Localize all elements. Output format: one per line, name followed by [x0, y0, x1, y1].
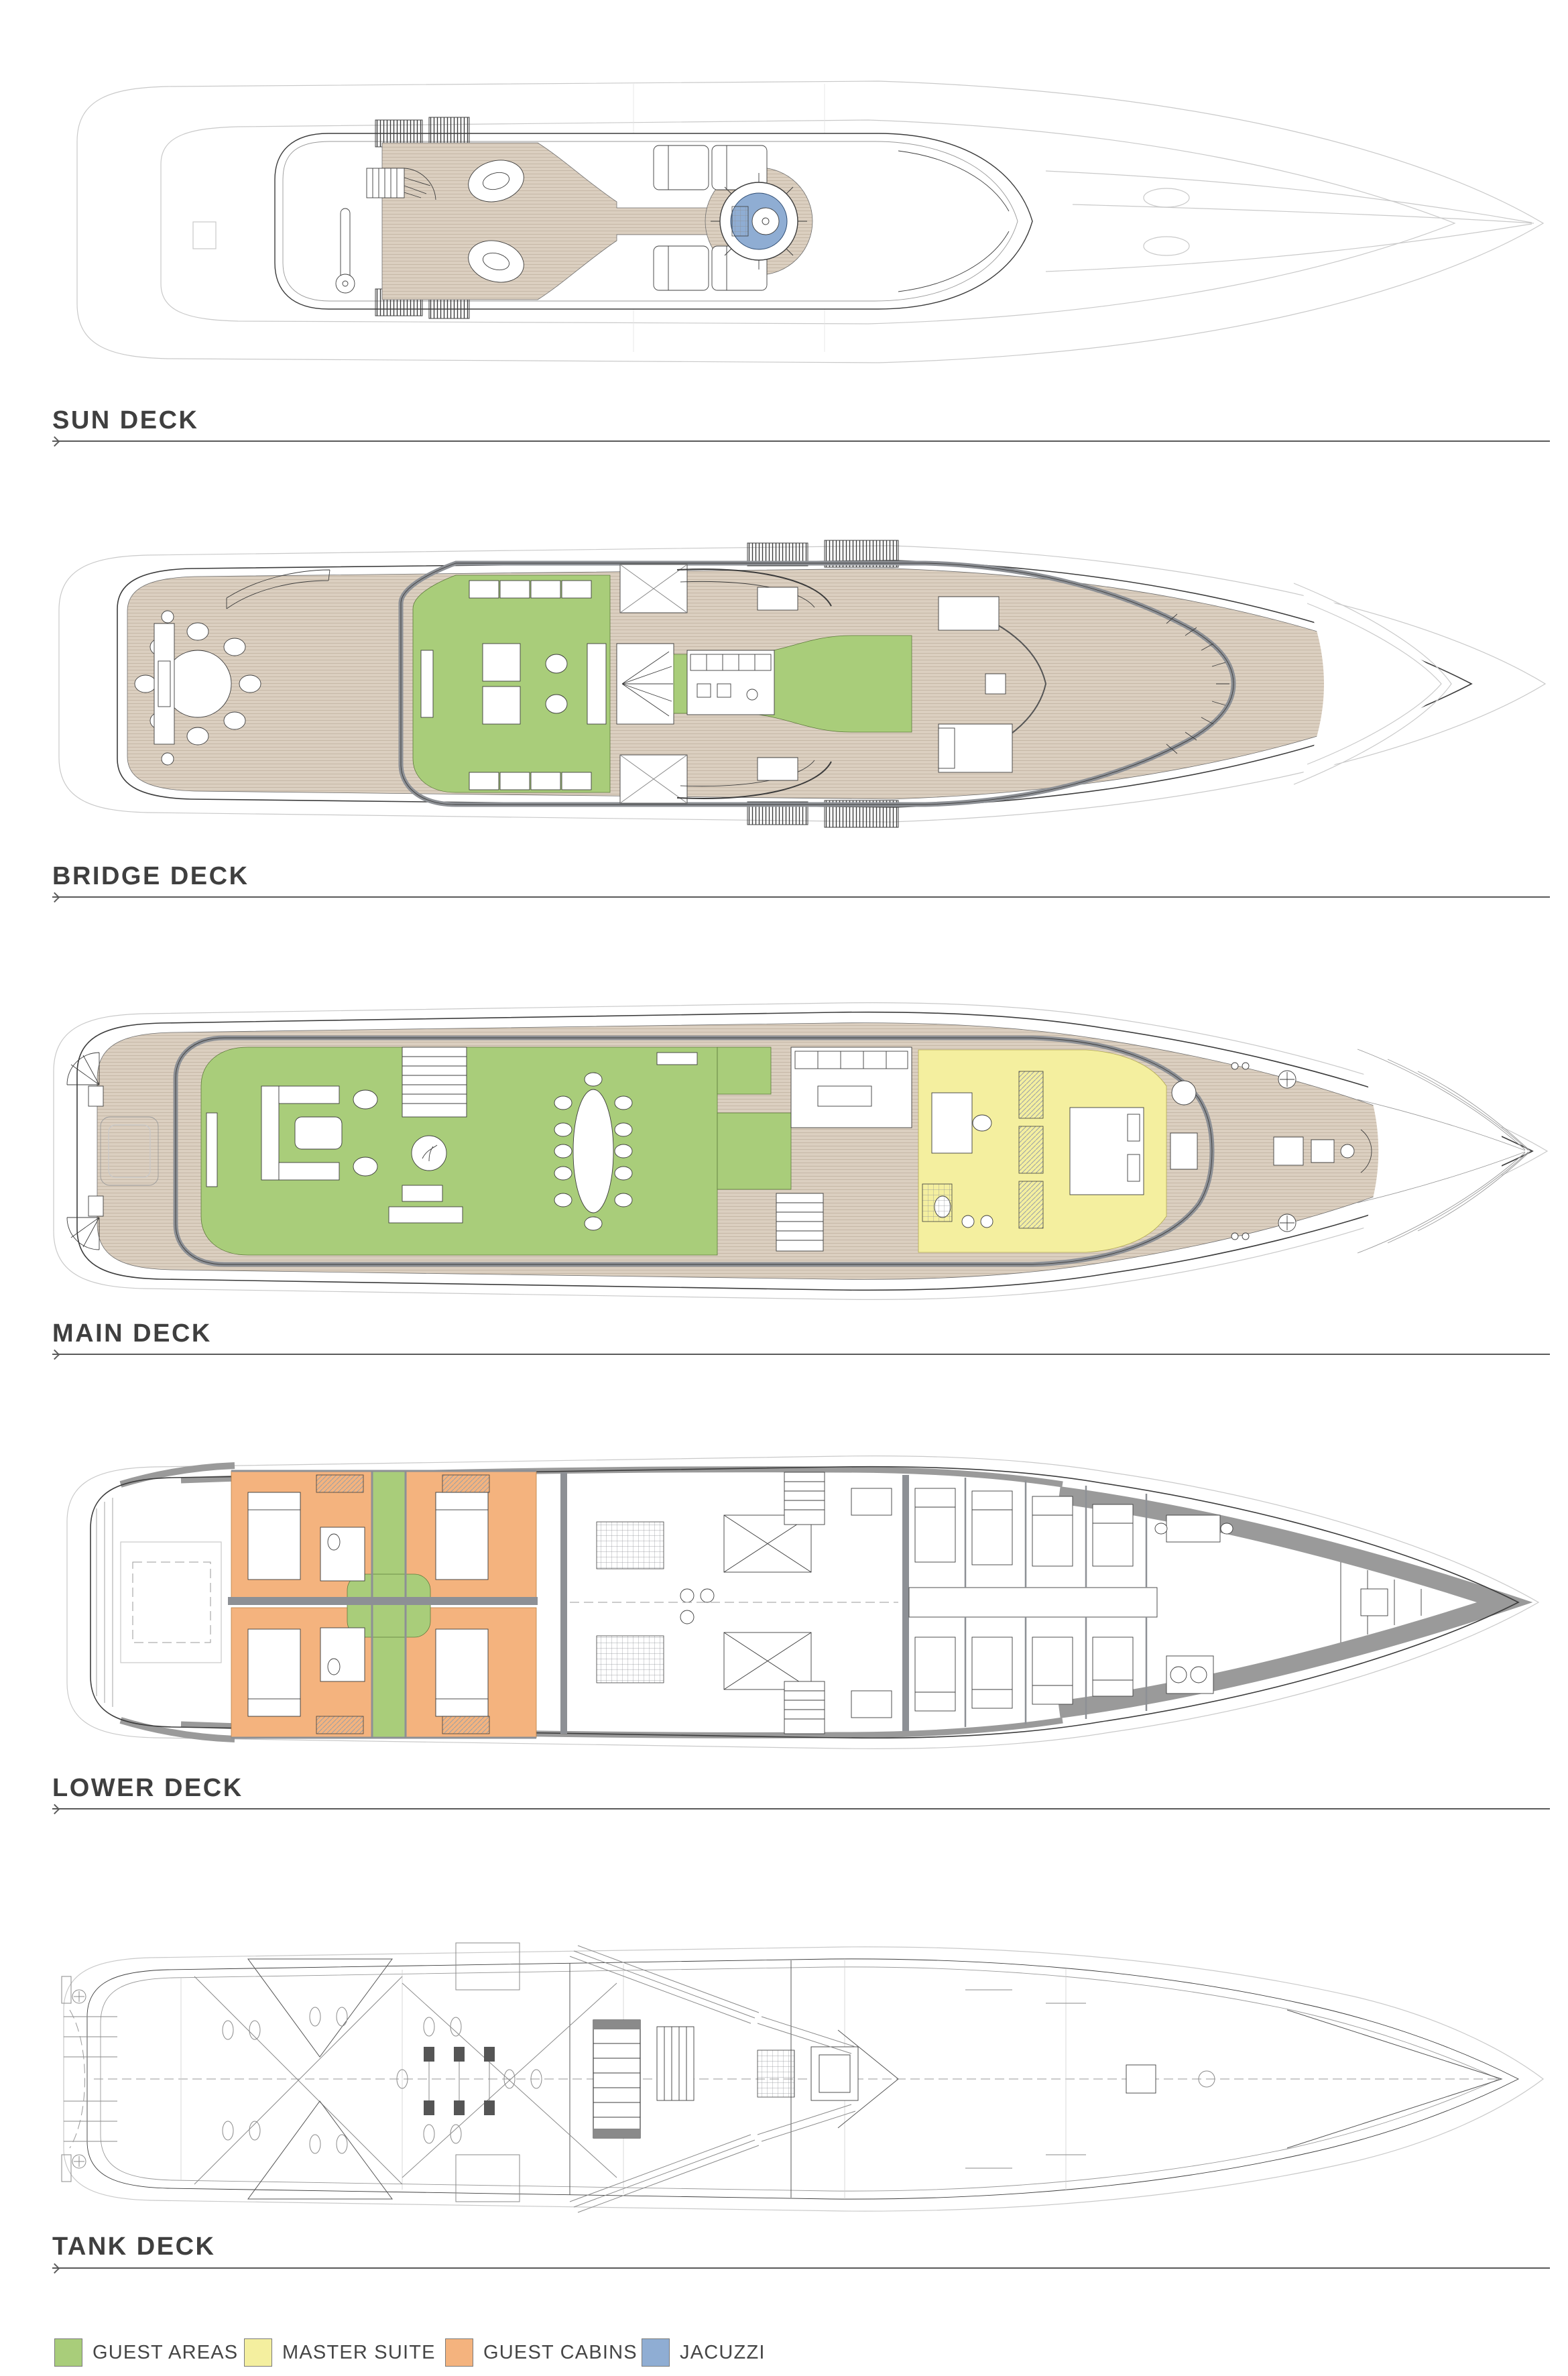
bridge-deck-plan [27, 523, 1549, 845]
legend-item-guest-areas: GUEST AREAS [54, 2338, 238, 2367]
main-deck-label: MAIN DECK [52, 1319, 212, 1348]
guest-areas-swatch [54, 2338, 82, 2367]
sun-deck-divider [52, 440, 1550, 442]
guest-cabins-swatch [445, 2338, 473, 2367]
bridge-deck-label: BRIDGE DECK [52, 862, 249, 891]
tank-deck-label: TANK DECK [52, 2233, 215, 2261]
sun-deck-label: SUN DECK [52, 406, 198, 435]
tank-deck-plan [27, 1916, 1549, 2228]
main-deck-salon-guest-area [201, 1047, 791, 1255]
tank-deck-manholes [223, 2007, 542, 2153]
tank-deck-machinery [593, 2020, 858, 2138]
bridge-deck-sky-lounge [413, 575, 610, 792]
lower-deck-divider [52, 1808, 1550, 1809]
jacuzzi-swatch [642, 2338, 670, 2367]
tank-deck-hull [64, 1947, 1543, 2211]
sun-deck-open-foredeck [1046, 171, 1534, 272]
lower-deck-plan [27, 1428, 1549, 1770]
deck-plans-page: SUN DECK [0, 0, 1568, 2376]
main-deck-plan [27, 986, 1549, 1314]
guest-cabins-region [228, 1471, 538, 1738]
main-deck-divider [52, 1354, 1550, 1355]
tank-deck-divider [52, 2267, 1550, 2269]
jacuzzi [711, 173, 807, 270]
legend-item-master-suite: MASTER SUITE [244, 2338, 436, 2367]
main-deck-dining [554, 1073, 632, 1230]
bridge-deck-pantry [687, 650, 774, 715]
lower-deck-label: LOWER DECK [52, 1774, 243, 1803]
sun-deck-plan [27, 70, 1549, 365]
master-suite-region [918, 1050, 1166, 1252]
guest-cabins-label: GUEST CABINS [483, 2342, 638, 2364]
legend-item-guest-cabins: GUEST CABINS [445, 2338, 638, 2367]
bridge-deck-divider [52, 896, 1550, 898]
bridge-deck-stairs [617, 644, 674, 724]
master-suite-swatch [244, 2338, 272, 2367]
tank-deck-frames [424, 1943, 520, 2202]
legend-item-jacuzzi: JACUZZI [642, 2338, 766, 2367]
jacuzzi-label: JACUZZI [680, 2342, 766, 2364]
master-suite-label: MASTER SUITE [282, 2342, 436, 2364]
guest-areas-label: GUEST AREAS [93, 2342, 238, 2364]
